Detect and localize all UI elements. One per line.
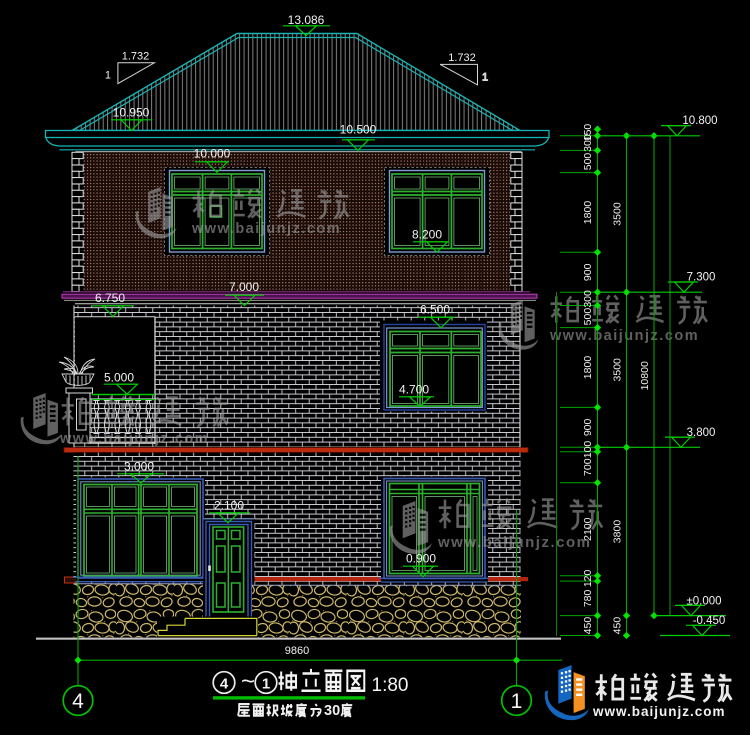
svg-text:4: 4	[220, 676, 229, 693]
svg-text:~: ~	[241, 668, 255, 695]
svg-text:10.950: 10.950	[113, 106, 150, 120]
svg-text:8.200: 8.200	[412, 228, 442, 242]
svg-text:900: 900	[582, 418, 594, 436]
svg-text:www.baijunjz.com: www.baijunjz.com	[59, 431, 209, 447]
svg-text:-0.450: -0.450	[693, 615, 726, 627]
svg-text:1800: 1800	[582, 201, 594, 225]
svg-text:450: 450	[582, 617, 594, 635]
svg-text:2.100: 2.100	[214, 499, 244, 513]
svg-text:10800: 10800	[639, 361, 651, 390]
svg-text:500: 500	[582, 153, 594, 171]
svg-text:1:80: 1:80	[372, 675, 409, 696]
svg-text:1800: 1800	[582, 356, 594, 380]
svg-text:www.baijunjz.com: www.baijunjz.com	[549, 328, 699, 344]
svg-text:www.baijunjz.com: www.baijunjz.com	[592, 704, 726, 719]
svg-text:100: 100	[582, 441, 594, 459]
svg-text:3.800: 3.800	[687, 427, 716, 439]
svg-text:10.800: 10.800	[682, 115, 717, 127]
svg-text:www.baijunjz.com: www.baijunjz.com	[437, 534, 591, 551]
svg-text:4: 4	[72, 690, 84, 713]
svg-text:120: 120	[582, 569, 594, 587]
svg-text:13.086: 13.086	[288, 13, 325, 27]
svg-text:300: 300	[582, 134, 594, 152]
svg-text:6.750: 6.750	[95, 291, 125, 305]
svg-text:30: 30	[324, 703, 340, 719]
svg-text:900: 900	[582, 263, 594, 281]
svg-text:300: 300	[582, 290, 594, 308]
svg-text:3500: 3500	[612, 358, 624, 382]
svg-text:www.baijunjz.com: www.baijunjz.com	[191, 221, 341, 237]
svg-text:9860: 9860	[285, 645, 309, 657]
svg-text:1.732: 1.732	[122, 51, 150, 63]
svg-text:±0.000: ±0.000	[686, 596, 721, 608]
svg-text:450: 450	[612, 617, 624, 635]
svg-text:4.700: 4.700	[399, 383, 429, 397]
svg-text:1.732: 1.732	[448, 52, 476, 64]
svg-text:10.000: 10.000	[194, 147, 231, 161]
svg-text:700: 700	[582, 458, 594, 476]
svg-text:10.500: 10.500	[340, 123, 377, 137]
svg-text:3500: 3500	[612, 202, 624, 226]
svg-text:7.300: 7.300	[687, 272, 716, 284]
svg-text:0.900: 0.900	[406, 552, 436, 566]
svg-text:3.000: 3.000	[124, 460, 154, 474]
svg-text:1: 1	[511, 690, 523, 713]
svg-text:1: 1	[482, 72, 488, 84]
svg-text:1: 1	[105, 70, 111, 82]
svg-text:2100: 2100	[582, 517, 594, 541]
svg-text:5.000: 5.000	[104, 371, 134, 385]
svg-text:6.500: 6.500	[420, 303, 450, 317]
svg-text:1: 1	[262, 676, 270, 693]
svg-text:7.000: 7.000	[229, 280, 259, 294]
svg-text:500: 500	[582, 308, 594, 326]
svg-text:3800: 3800	[612, 520, 624, 544]
svg-text:780: 780	[582, 589, 594, 607]
